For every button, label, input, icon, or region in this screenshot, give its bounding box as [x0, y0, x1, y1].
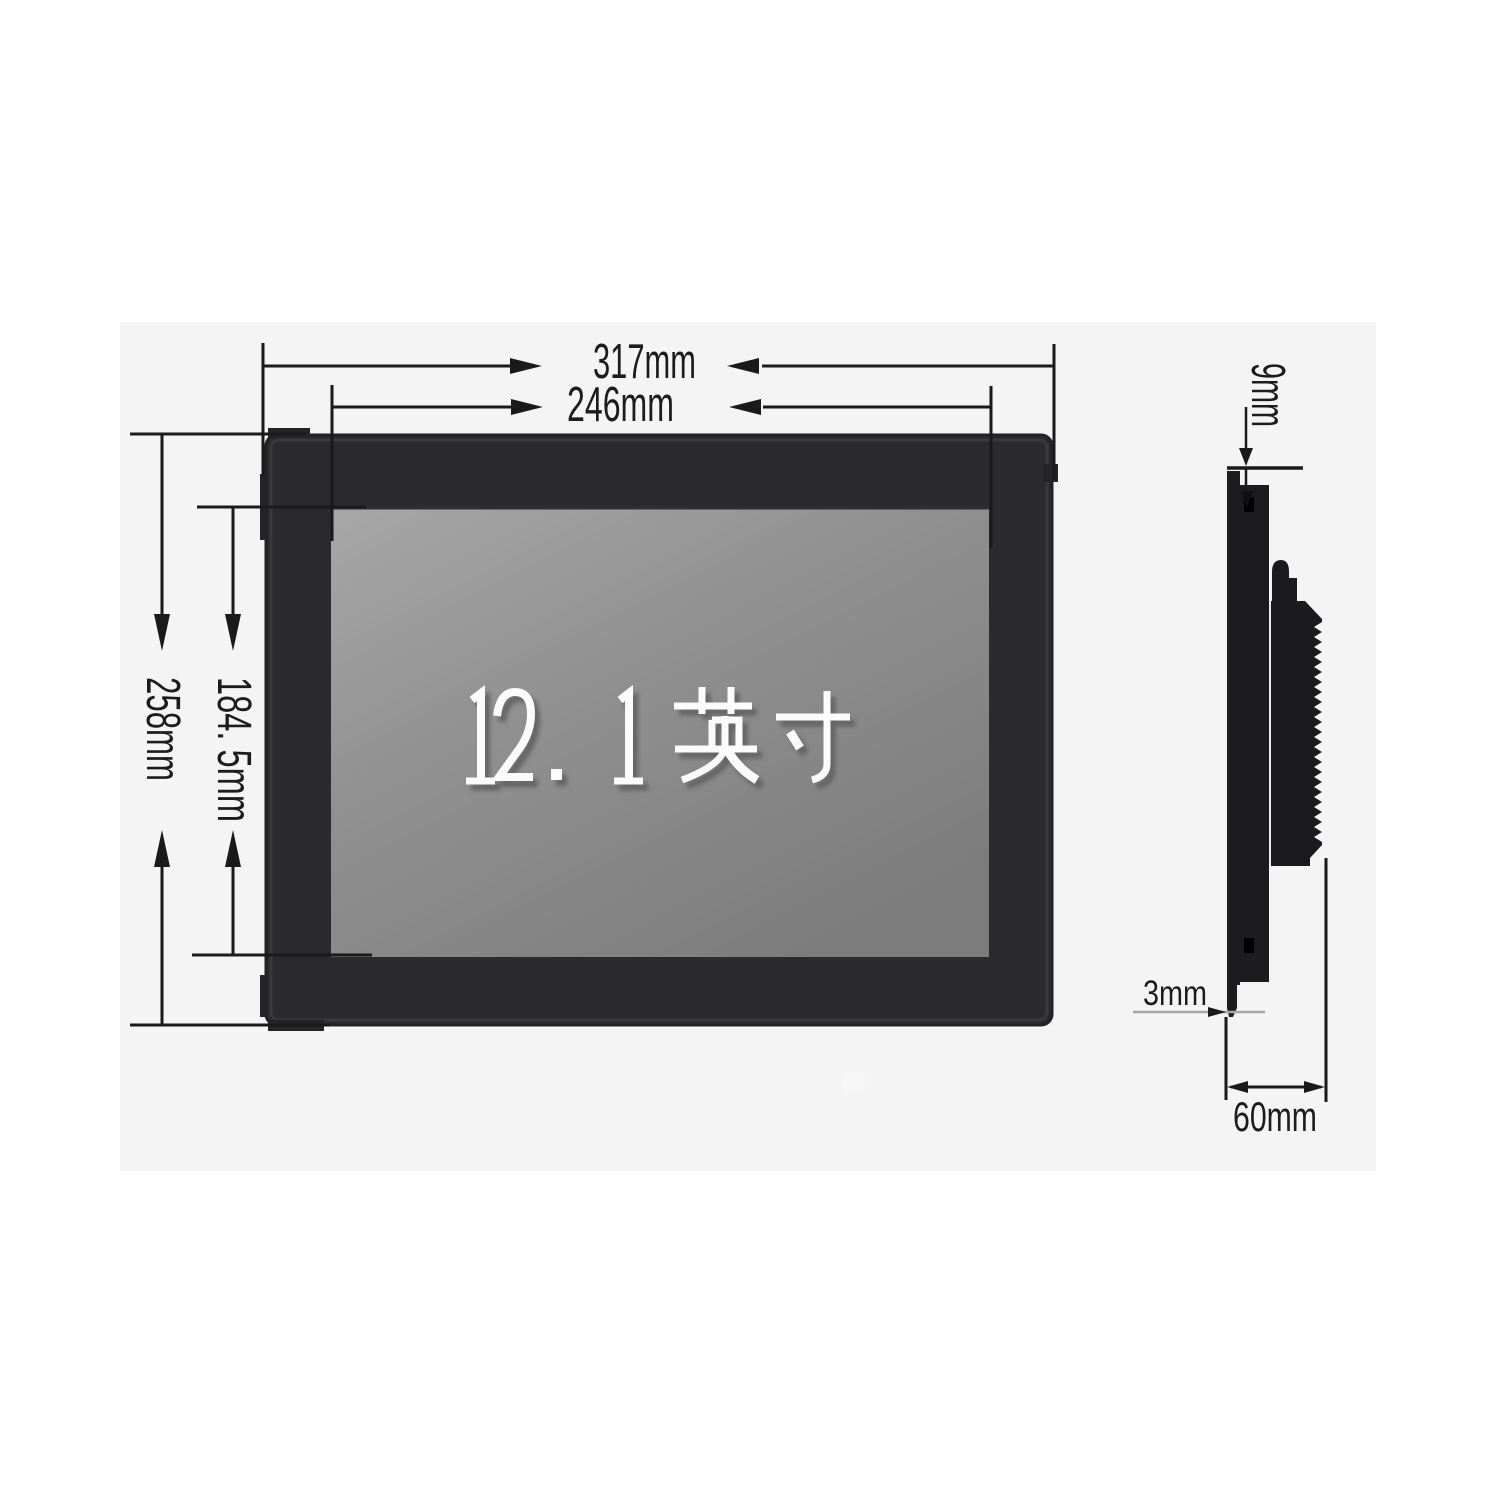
svg-text:246mm: 246mm — [567, 378, 674, 432]
svg-text:184. 5mm: 184. 5mm — [207, 677, 260, 822]
svg-text:9mm: 9mm — [1241, 363, 1294, 427]
svg-text:60mm: 60mm — [1233, 1093, 1317, 1140]
svg-text:258mm: 258mm — [136, 677, 189, 781]
svg-text:3mm: 3mm — [1143, 974, 1207, 1013]
